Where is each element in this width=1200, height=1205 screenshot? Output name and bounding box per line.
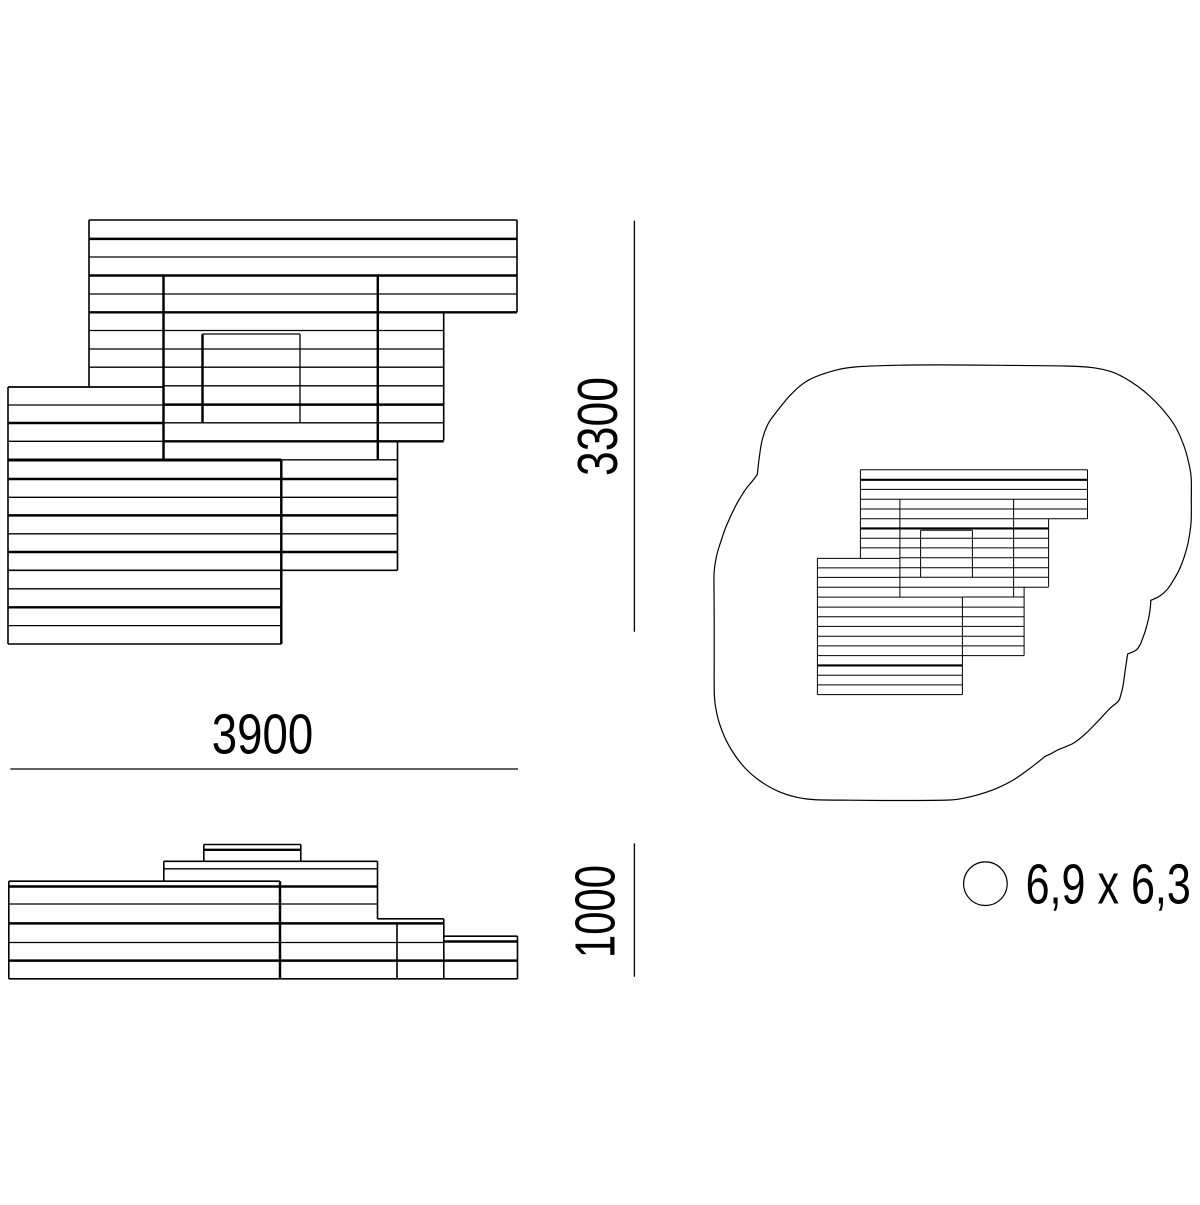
svg-text:1000: 1000 — [563, 865, 627, 958]
svg-text:6,9 x 6,3: 6,9 x 6,3 — [1026, 851, 1191, 915]
svg-text:3900: 3900 — [212, 702, 313, 766]
svg-text:3300: 3300 — [566, 377, 630, 476]
